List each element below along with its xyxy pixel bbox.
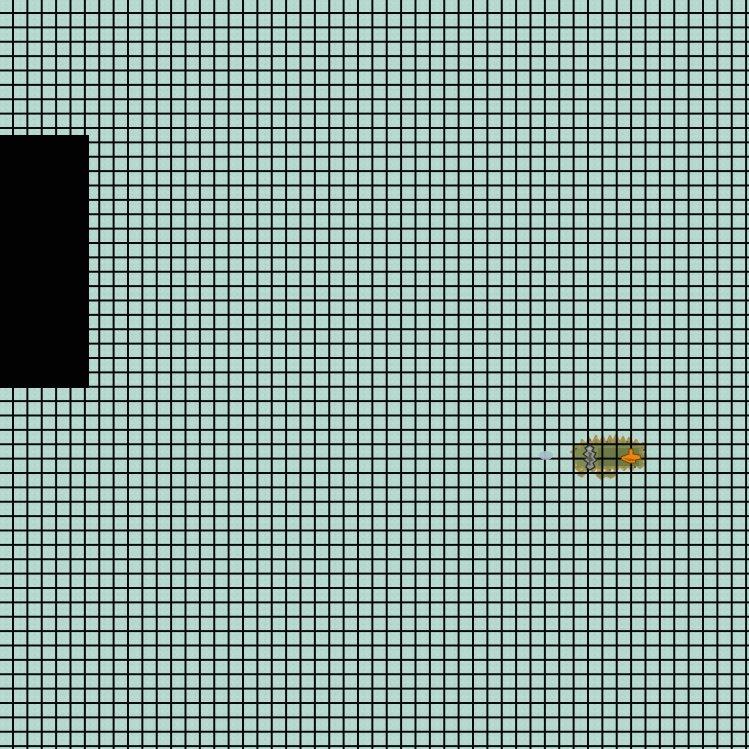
orange-item-sprite[interactable] [620, 448, 642, 466]
pebble-sprite[interactable] [538, 449, 554, 461]
grid-overlay [0, 0, 749, 749]
void-region [0, 135, 89, 388]
rock-sprite[interactable] [579, 444, 601, 472]
game-world-grid[interactable] [0, 0, 749, 749]
